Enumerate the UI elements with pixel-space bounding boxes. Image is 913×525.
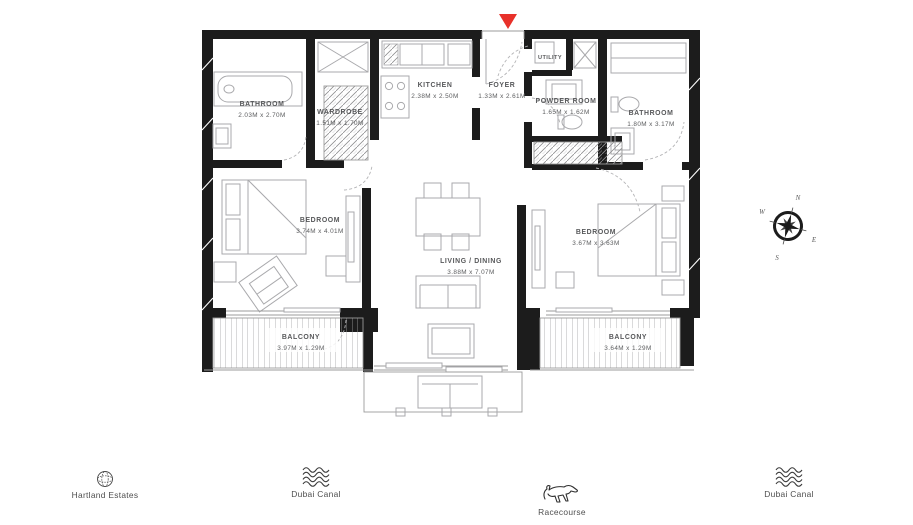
legend-label: Racecourse — [538, 507, 586, 517]
floorplan-page: BATHROOM 2.03M x 2.70M WARDROBE 1.51M x … — [0, 0, 913, 525]
horse-icon — [544, 486, 577, 503]
legend: Hartland Estates Dubai Canal Racecourse … — [72, 468, 814, 517]
room-bathroom-1: BATHROOM 2.03M x 2.70M — [213, 72, 306, 160]
room-label-utility: UTILITY — [538, 55, 562, 61]
nightstand-icon — [662, 280, 684, 295]
legend-label: Dubai Canal — [764, 489, 813, 499]
side-table-icon — [326, 256, 346, 276]
globe-icon — [98, 472, 113, 487]
room-dims-bathroom-1: 2.03M x 2.70M — [238, 112, 285, 119]
coffee-table-icon — [428, 324, 474, 358]
room-living-dining: LIVING / DINING 3.88M x 7.07M — [416, 183, 502, 358]
room-dims-foyer: 1.33M x 2.61M — [478, 93, 525, 100]
room-kitchen: KITCHEN 2.38M x 2.50M — [381, 41, 472, 118]
entry-arrow-icon — [499, 14, 517, 29]
legend-label: Hartland Estates — [72, 490, 139, 500]
compass-w-label: W — [759, 208, 766, 216]
room-bedroom-1: BEDROOM 3.74M x 4.01M — [214, 166, 372, 312]
room-wardrobe: WARDROBE 1.51M x 1.70M — [316, 42, 368, 160]
legend-item-dubai-canal-2: Dubai Canal — [764, 468, 813, 499]
legend-item-hartland-estates: Hartland Estates — [72, 472, 139, 501]
legend-item-racecourse: Racecourse — [538, 486, 586, 518]
door-arc — [344, 166, 372, 190]
room-dims-wardrobe: 1.51M x 1.70M — [316, 120, 363, 127]
compass-s-label: S — [775, 254, 779, 262]
legend-item-dubai-canal-1: Dubai Canal — [291, 468, 340, 499]
dining-table-icon — [416, 198, 480, 236]
room-balcony-2: BALCONY 3.64M x 1.29M — [530, 318, 694, 370]
lounge-chair-icon — [239, 256, 297, 312]
room-label-kitchen: KITCHEN — [418, 82, 453, 89]
compass-rose-icon: N E S W — [759, 194, 817, 262]
room-label-powder-room: POWDER ROOM — [536, 98, 597, 105]
compass-n-label: N — [795, 194, 801, 202]
stove-icon — [381, 76, 409, 118]
toilet-icon — [619, 97, 639, 111]
room-label-bedroom-1: BEDROOM — [300, 217, 340, 224]
legend-label: Dubai Canal — [291, 489, 340, 499]
side-table-icon — [214, 262, 236, 282]
room-label-living-dining: LIVING / DINING — [440, 258, 502, 265]
room-dims-powder-room: 1.65M x 1.62M — [542, 109, 589, 116]
room-label-bathroom-1: BATHROOM — [240, 101, 285, 108]
room-label-balcony-2: BALCONY — [609, 334, 647, 341]
tv-console-icon — [532, 210, 545, 288]
room-dims-bathroom-2: 1.80M x 3.17M — [627, 121, 674, 128]
door-arc — [284, 136, 306, 160]
door-arc — [498, 46, 528, 76]
room-dims-balcony-2: 3.64M x 1.29M — [604, 345, 651, 352]
room-label-balcony-1: BALCONY — [282, 334, 320, 341]
dining-chair-icon — [424, 183, 441, 199]
floorplan-svg: BATHROOM 2.03M x 2.70M WARDROBE 1.51M x … — [0, 0, 913, 525]
room-dims-kitchen: 2.38M x 2.50M — [411, 93, 458, 100]
room-label-bathroom-2: BATHROOM — [629, 110, 674, 117]
room-dims-bedroom-2: 3.67M x 3.63M — [572, 240, 619, 247]
waves-icon — [303, 468, 329, 487]
dining-chair-icon — [452, 183, 469, 199]
wardrobe-hatch — [534, 142, 622, 164]
compass-e-label: E — [811, 236, 817, 244]
room-powder-room: POWDER ROOM 1.65M x 1.62M — [532, 80, 596, 129]
room-balcony-1: BALCONY 3.97M x 1.29M — [204, 318, 373, 370]
entry — [482, 14, 524, 84]
room-label-bedroom-2: BEDROOM — [576, 229, 616, 236]
toilet-icon — [562, 115, 582, 129]
side-table-icon — [556, 272, 574, 288]
bed-icon — [222, 180, 306, 254]
room-dims-balcony-1: 3.97M x 1.29M — [277, 345, 324, 352]
nightstand-icon — [662, 186, 684, 201]
terrace — [364, 372, 522, 416]
waves-icon — [776, 468, 802, 487]
door-arc — [596, 168, 640, 212]
room-utility: UTILITY — [535, 42, 596, 68]
room-dims-living-dining: 3.88M x 7.07M — [447, 269, 494, 276]
room-label-wardrobe: WARDROBE — [317, 109, 363, 116]
room-label-foyer: FOYER — [489, 82, 516, 89]
room-dims-bedroom-1: 3.74M x 4.01M — [296, 228, 343, 235]
